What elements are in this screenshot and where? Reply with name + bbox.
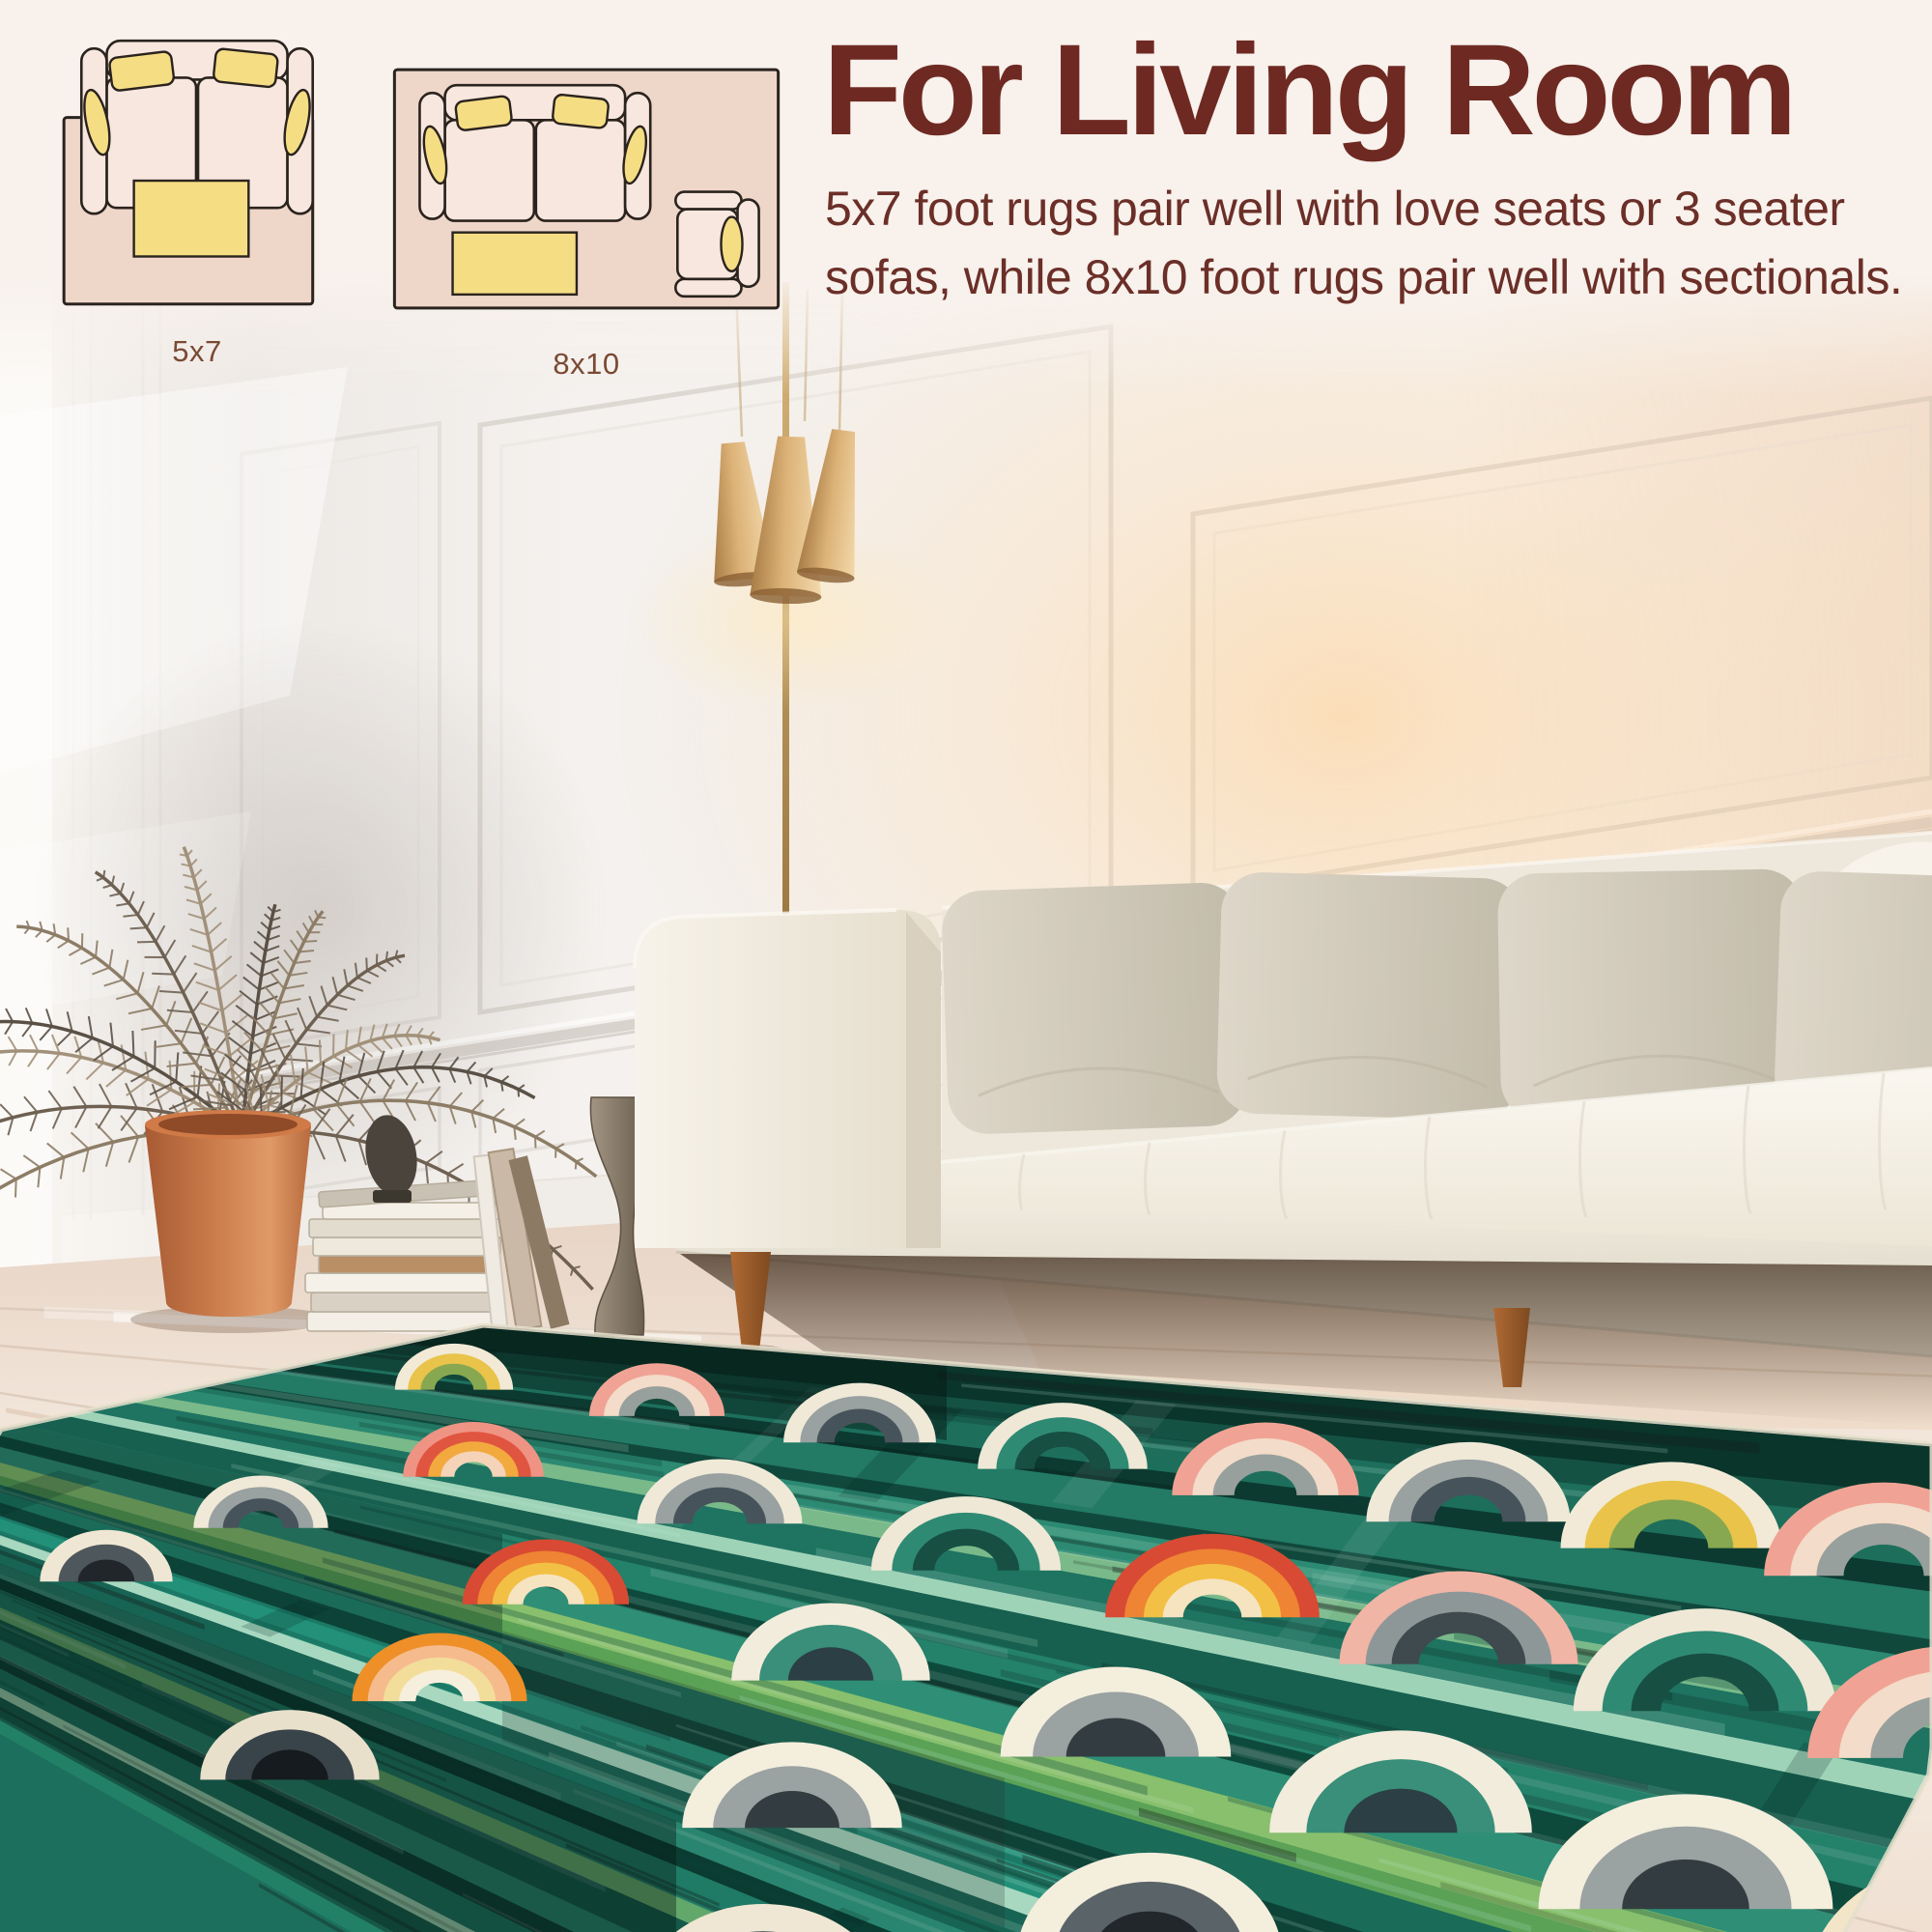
white-sofa xyxy=(635,833,1932,1426)
coffee-table-icon xyxy=(453,233,577,295)
description-line-2: sofas, while 8x10 foot rugs pair well wi… xyxy=(825,250,1902,304)
description-line-1: 5x7 foot rugs pair well with love seats … xyxy=(825,182,1845,236)
size-label-5x7: 5x7 xyxy=(37,334,357,369)
rug-diagram-5x7: 5x7 xyxy=(37,25,357,369)
sofa-arm xyxy=(635,910,941,1248)
rug-8x10-top-view xyxy=(381,39,792,339)
size-description: 5x7 foot rugs pair well with love seats … xyxy=(825,175,1924,312)
coffee-table-icon xyxy=(134,181,249,256)
page-title: For Living Room xyxy=(823,21,1924,161)
sofa-top-view-icon xyxy=(419,85,650,220)
rug-5x7-top-view xyxy=(37,25,357,327)
lamp-shades xyxy=(702,427,872,605)
rug-diagram-8x10: 8x10 xyxy=(381,39,792,382)
armchair-icon xyxy=(675,192,758,297)
book-stack xyxy=(305,1180,502,1331)
header: For Living Room 5x7 foot rugs pair well … xyxy=(823,21,1924,312)
rug-size-infographic: 5x7 xyxy=(0,0,1932,1932)
size-label-8x10: 8x10 xyxy=(381,347,792,382)
